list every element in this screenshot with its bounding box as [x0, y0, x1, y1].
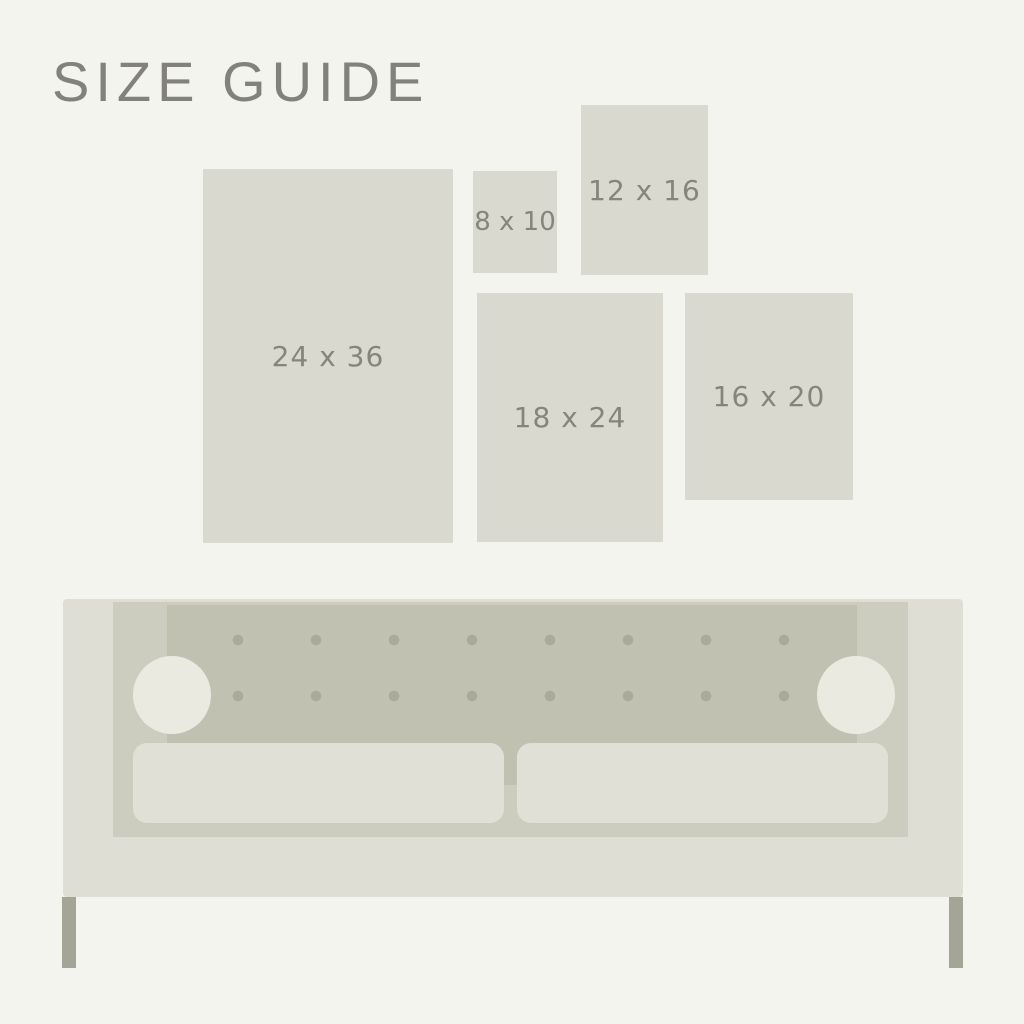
sofa-illustration: [0, 0, 1024, 1024]
sofa-leg-right: [949, 897, 963, 968]
sofa-seat-cushion-right: [517, 743, 888, 823]
sofa-bolster-pillow-right: [817, 656, 895, 734]
sofa-bolster-pillow-left: [133, 656, 211, 734]
size-guide-diagram: SIZE GUIDE 24 x 36 8 x 10 12 x 16 18 x 2…: [0, 0, 1024, 1024]
sofa-leg-left: [62, 897, 76, 968]
tufting-dots: [167, 605, 857, 740]
sofa-seat-cushion-left: [133, 743, 504, 823]
